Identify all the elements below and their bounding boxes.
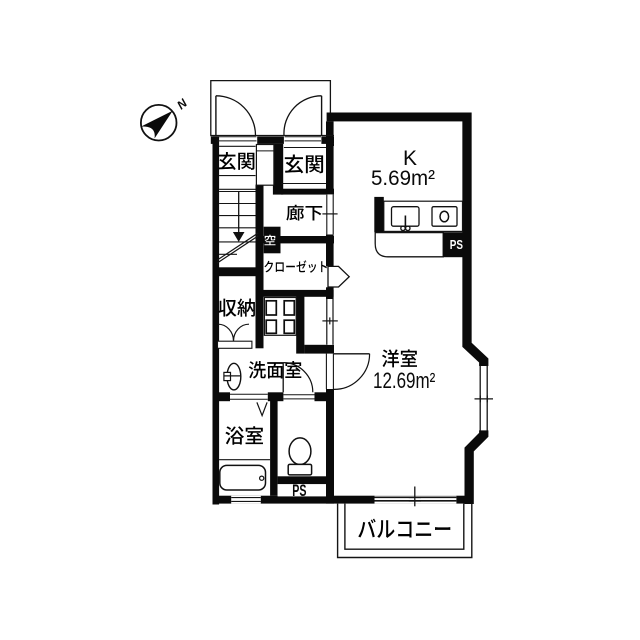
svg-text:12.69m²: 12.69m² (373, 368, 435, 393)
svg-text:PS: PS (450, 237, 463, 252)
svg-text:PS: PS (292, 482, 306, 500)
svg-text:5.69m²: 5.69m² (371, 167, 435, 190)
